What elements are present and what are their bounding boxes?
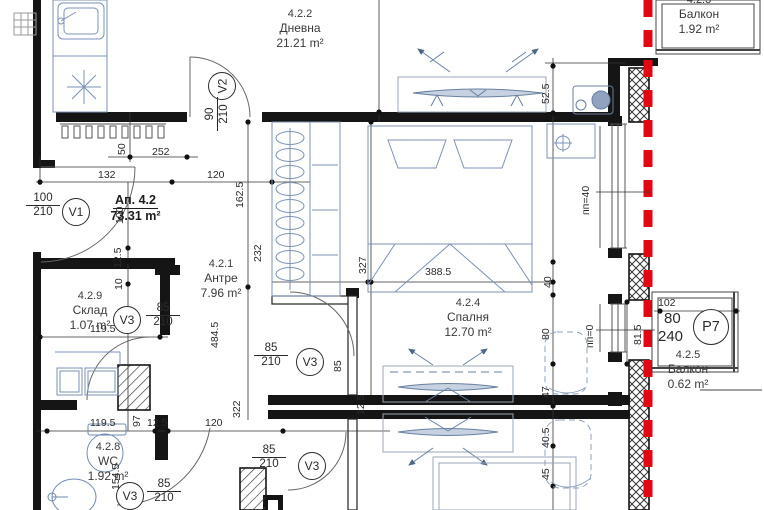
dim-100: 100 — [114, 206, 126, 224]
dim-10: 10 — [113, 278, 125, 290]
door-width: 85 — [254, 342, 288, 356]
door-width: 90 — [204, 97, 218, 131]
dim-240: 240 — [658, 328, 683, 345]
dim-119-5-b: 119.5 — [90, 417, 116, 429]
dim-154-5: 154.5 — [110, 464, 122, 490]
door-height: 210 — [218, 97, 231, 131]
room-id: 4.2.8 — [66, 441, 150, 454]
door-size-v1: 100 210 — [26, 192, 60, 219]
radiator — [60, 124, 166, 138]
window-tag-p7: P7 — [693, 309, 729, 345]
room-label-balkon-top: 4.2.3 Балкон 1.92 m² — [644, 0, 754, 36]
room-label-wc: 4.2.8 WC 1.92 m² — [66, 441, 150, 483]
room-area: 21.21 m² — [252, 36, 348, 50]
door-tag-v3-sklad: V3 — [113, 306, 141, 334]
door-width: 85 — [146, 302, 180, 316]
window-symbol-mid — [383, 349, 513, 402]
dim-232: 232 — [252, 244, 264, 262]
room-name: WC — [66, 454, 150, 468]
door-width: 100 — [26, 192, 60, 206]
dim-12-5-b: 12.5 — [147, 417, 167, 429]
door-tag-v3-bottom: V3 — [298, 452, 326, 480]
room-area: 12.70 m² — [418, 325, 518, 339]
room-name: Дневна — [252, 21, 348, 35]
door-tag-label: V3 — [120, 313, 135, 327]
room-name: Антре — [176, 271, 266, 285]
room-label-antre: 4.2.1 Антре 7.96 m² — [176, 258, 266, 300]
floor-plan: 4.2.2 Дневна 21.21 m² 4.2.3 Балкон 1.92 … — [0, 0, 764, 510]
dim-120-top: 120 — [207, 169, 225, 181]
room-id: 4.2.4 — [418, 297, 518, 310]
door-tag-label: V1 — [69, 205, 84, 219]
storage-appliances — [55, 352, 120, 395]
room-id: 4.2.9 — [52, 290, 128, 303]
dim-12-5-left: 12.5 — [112, 248, 124, 268]
room-area: 1.92 m² — [66, 469, 150, 483]
window-symbol-top — [398, 49, 546, 112]
room-id: 4.2.2 — [252, 8, 348, 21]
dim-97: 97 — [131, 415, 143, 427]
dim-40-5: 40.5 — [540, 428, 552, 448]
door-tag-v2: V2 — [208, 72, 236, 100]
dim-45: 45 — [540, 468, 552, 480]
dim-120-bot: 120 — [205, 417, 223, 429]
wardrobe — [272, 122, 340, 296]
right-windows — [600, 124, 627, 352]
dim-388-5: 388.5 — [425, 266, 451, 278]
dim-80-v: 80 — [540, 328, 552, 340]
door-tag-v3-bedroom: V3 — [296, 348, 324, 376]
room-label-dnevna: 4.2.2 Дневна 21.21 m² — [252, 8, 348, 50]
door-size-v2: 90 210 — [204, 97, 231, 131]
door-tag-label: V3 — [305, 459, 320, 473]
door-tag-label: V3 — [123, 489, 138, 503]
dim-40: 40 — [542, 276, 554, 288]
level-pp0: пп=0 — [584, 325, 596, 348]
level-pp40: пп=40 — [580, 186, 592, 215]
room-name: Спалня — [418, 310, 518, 324]
dim-327: 327 — [357, 256, 369, 274]
door-width: 85 — [252, 444, 286, 458]
door-height: 210 — [252, 458, 286, 471]
door-height: 210 — [146, 316, 180, 329]
apartment-label: Ап. 4.2 73.31 m² — [83, 191, 188, 223]
dim-50: 50 — [116, 143, 128, 155]
room-area: 7.96 m² — [176, 286, 266, 300]
room-area: 1.92 m² — [644, 22, 754, 36]
dim-81-5: 81.5 — [632, 325, 644, 345]
room-label-balkon-bottom: 4.2.5 Балкон 0.62 m² — [642, 349, 734, 391]
dim-52-5: 52.5 — [540, 84, 552, 104]
dim-47: 47 — [540, 386, 552, 398]
dim-85: 85 — [332, 360, 344, 372]
door-tag-v1: V1 — [62, 198, 90, 226]
door-size-v3-bottom: 85 210 — [252, 444, 286, 471]
dim-252: 252 — [152, 146, 170, 158]
window-tag-label: P7 — [702, 319, 720, 335]
dim-119-5-a: 119.5 — [90, 323, 116, 335]
door-tag-label: V2 — [215, 79, 229, 94]
grid-icon — [14, 13, 36, 35]
washing-machine — [573, 86, 613, 114]
door-size-v3-wc: 85 210 — [147, 478, 181, 505]
dim-484-5: 484.5 — [209, 322, 221, 348]
door-width: 85 — [147, 478, 181, 492]
dim-102: 102 — [658, 297, 676, 309]
room-name: Балкон — [642, 362, 734, 376]
dim-162-5: 162.5 — [234, 182, 246, 208]
apartment-area: 73.31 m² — [83, 209, 188, 223]
room-area: 0.62 m² — [642, 377, 734, 391]
door-height: 210 — [147, 492, 181, 505]
dim-322: 322 — [231, 400, 243, 418]
dim-132: 132 — [98, 169, 116, 181]
room-id: 4.2.5 — [642, 349, 734, 362]
room-id: 4.2.3 — [644, 0, 754, 7]
door-tag-label: V3 — [303, 355, 318, 369]
kitchen — [53, 0, 107, 112]
dim-12-5-c: 12.5 — [355, 395, 367, 415]
room-label-spalnya: 4.2.4 Спалня 12.70 m² — [418, 297, 518, 339]
door-size-v3-sklad: 85 210 — [146, 302, 180, 329]
door-size-v3-bedroom: 85 210 — [254, 342, 288, 369]
room-name: Балкон — [644, 7, 754, 21]
nightstand — [547, 124, 595, 158]
door-height: 210 — [254, 356, 288, 369]
dim-80-balcony: 80 — [664, 310, 681, 327]
wash-basin — [52, 479, 96, 510]
door-height: 210 — [26, 206, 60, 219]
